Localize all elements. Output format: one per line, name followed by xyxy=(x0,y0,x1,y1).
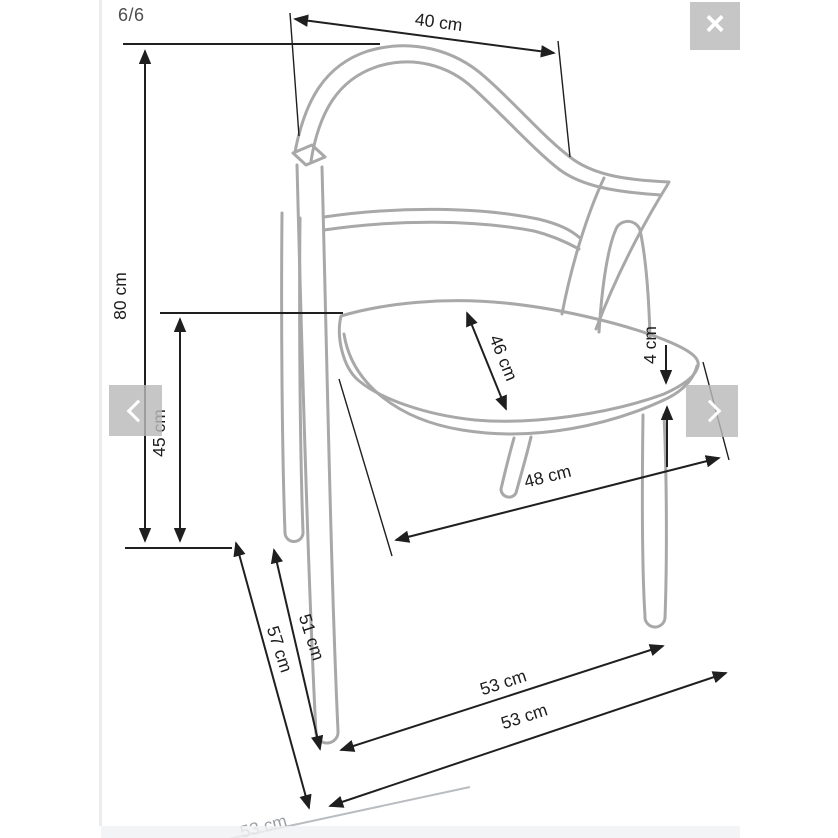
dim-label-front-leg-length: 51 cm xyxy=(295,611,329,663)
dim-label-seat-thickness: 4 cm xyxy=(640,326,660,364)
dim-label-base-width-front: 53 cm xyxy=(498,699,550,733)
bottom-overlay-strip xyxy=(101,826,740,838)
dim-label-backrest-width: 40 cm xyxy=(414,9,464,35)
dim-label-seat-depth: 46 cm xyxy=(485,332,521,384)
dim-label-total-height: 80 cm xyxy=(110,272,130,320)
close-icon: × xyxy=(705,7,725,41)
dim-label-base-depth: 57 cm xyxy=(263,623,297,675)
close-button[interactable]: × xyxy=(690,2,740,50)
chevron-right-icon xyxy=(698,400,721,423)
dim-label-base-width-rear: 53 cm xyxy=(477,665,529,699)
dim-label-seat-width: 48 cm xyxy=(522,461,573,492)
chevron-left-icon xyxy=(127,399,150,422)
next-image-button[interactable] xyxy=(686,385,738,437)
prev-image-button[interactable] xyxy=(109,385,162,436)
image-counter: 6/6 xyxy=(118,5,145,26)
